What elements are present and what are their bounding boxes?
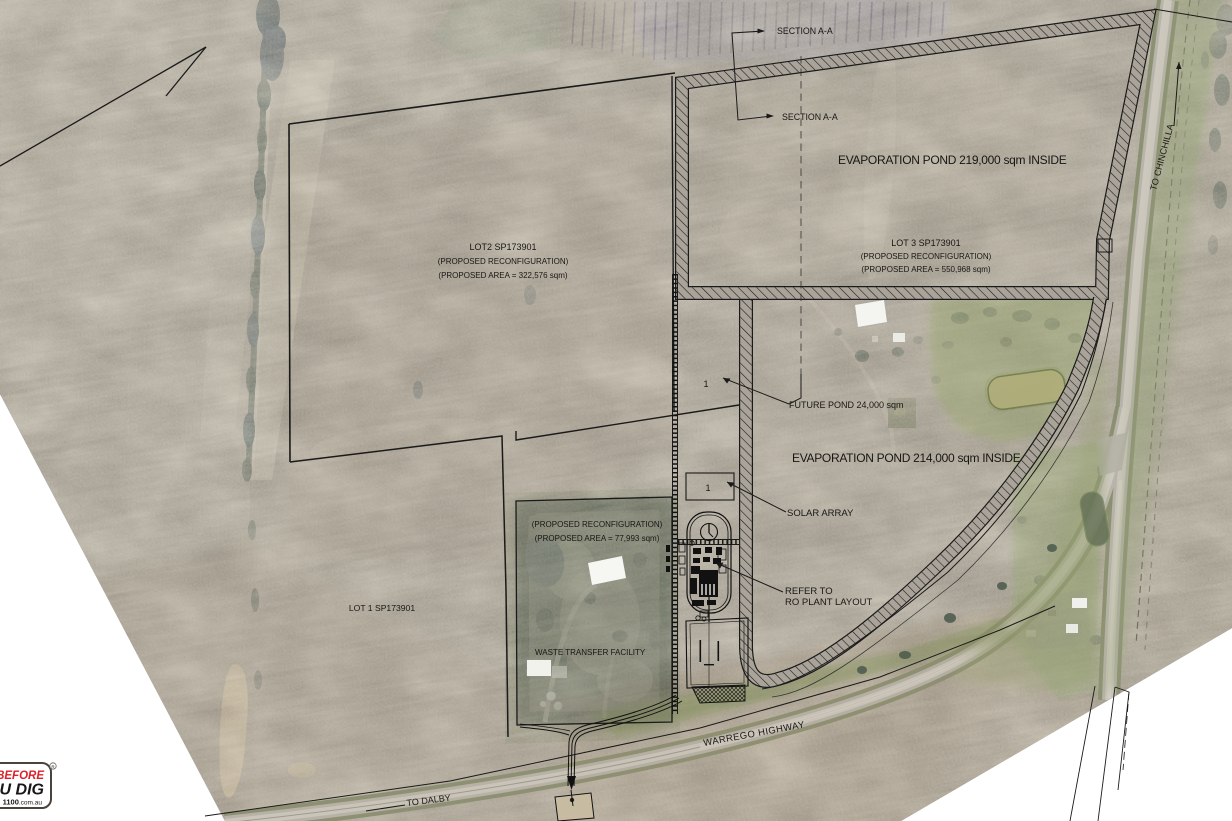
svg-text:(PROPOSED AREA = 322,576 sqm): (PROPOSED AREA = 322,576 sqm) [438,271,568,280]
svg-text:WASTE TRANSFER FACILITY: WASTE TRANSFER FACILITY [535,648,646,657]
svg-text:LOT2 SP173901: LOT2 SP173901 [469,242,536,252]
svg-text:L BEFORE: L BEFORE [0,770,44,782]
svg-text:U DIG: U DIG [0,782,44,799]
svg-text:SECTION A-A: SECTION A-A [782,112,838,122]
svg-text:(PROPOSED AREA = 77,993 sqm): (PROPOSED AREA = 77,993 sqm) [535,534,660,543]
svg-text:SECTION A-A: SECTION A-A [777,26,833,36]
svg-text:FUTURE POND 24,000 sqm: FUTURE POND 24,000 sqm [789,400,904,410]
svg-text:REFER TO: REFER TO [785,586,833,597]
svg-text:LOT 1 SP173901: LOT 1 SP173901 [349,603,415,613]
svg-text:(PROPOSED RECONFIGURATION): (PROPOSED RECONFIGURATION) [861,252,992,261]
svg-text:EVAPORATION POND 219,000 sqm I: EVAPORATION POND 219,000 sqm INSIDE [838,153,1067,167]
svg-text:1: 1 [705,483,710,493]
svg-text:SOLAR ARRAY: SOLAR ARRAY [787,508,854,519]
svg-text:RO PLANT LAYOUT: RO PLANT LAYOUT [785,597,872,608]
svg-text:1: 1 [703,379,708,389]
svg-text:(PROPOSED RECONFIGURATION): (PROPOSED RECONFIGURATION) [532,520,663,529]
svg-text:LOT 3 SP173901: LOT 3 SP173901 [891,238,960,248]
svg-text:(PROPOSED RECONFIGURATION): (PROPOSED RECONFIGURATION) [438,257,569,266]
svg-text:(PROPOSED AREA = 550,968 sqm): (PROPOSED AREA = 550,968 sqm) [861,265,991,274]
svg-text:EVAPORATION POND 214,000 sqm I: EVAPORATION POND 214,000 sqm INSIDE [792,451,1021,465]
svg-text:1100.com.au: 1100.com.au [3,798,43,807]
